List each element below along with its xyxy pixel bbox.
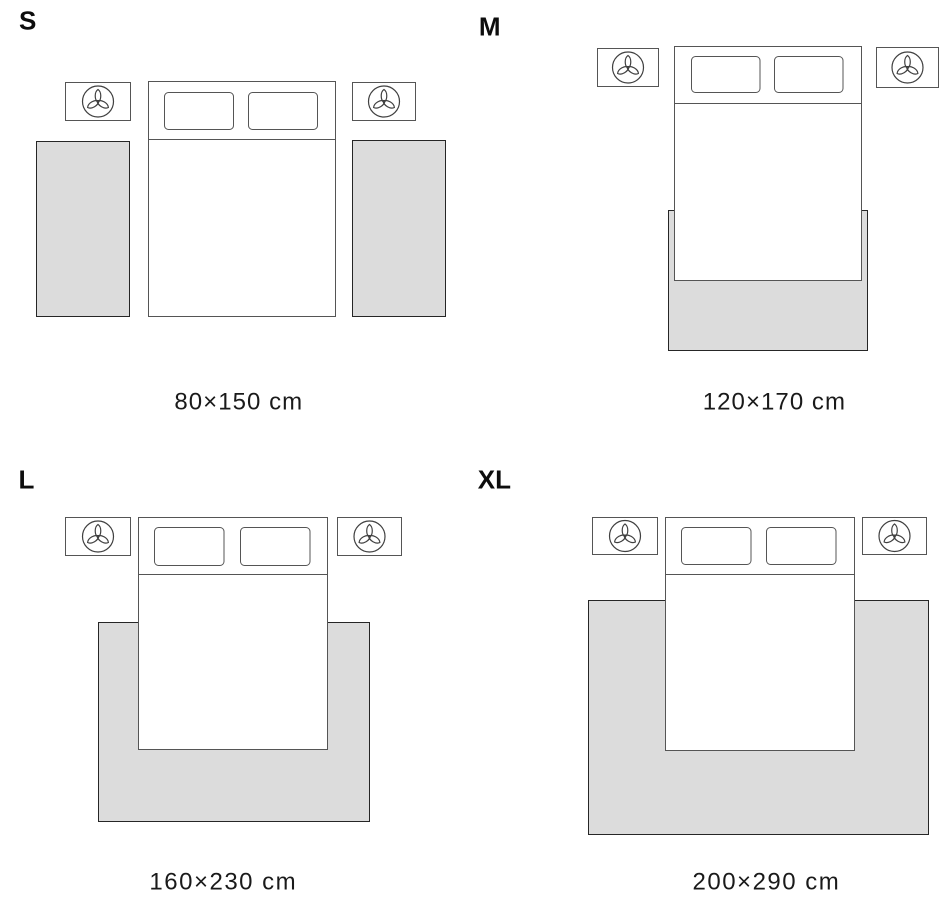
svg-text:L: L [19,464,35,494]
svg-text:S: S [19,6,36,36]
svg-text:80×150 cm: 80×150 cm [174,389,303,416]
svg-text:XL: XL [478,465,511,495]
svg-text:160×230 cm: 160×230 cm [149,869,297,896]
svg-text:M: M [479,11,501,41]
svg-text:200×290 cm: 200×290 cm [693,869,841,896]
svg-text:120×170 cm: 120×170 cm [703,389,846,416]
